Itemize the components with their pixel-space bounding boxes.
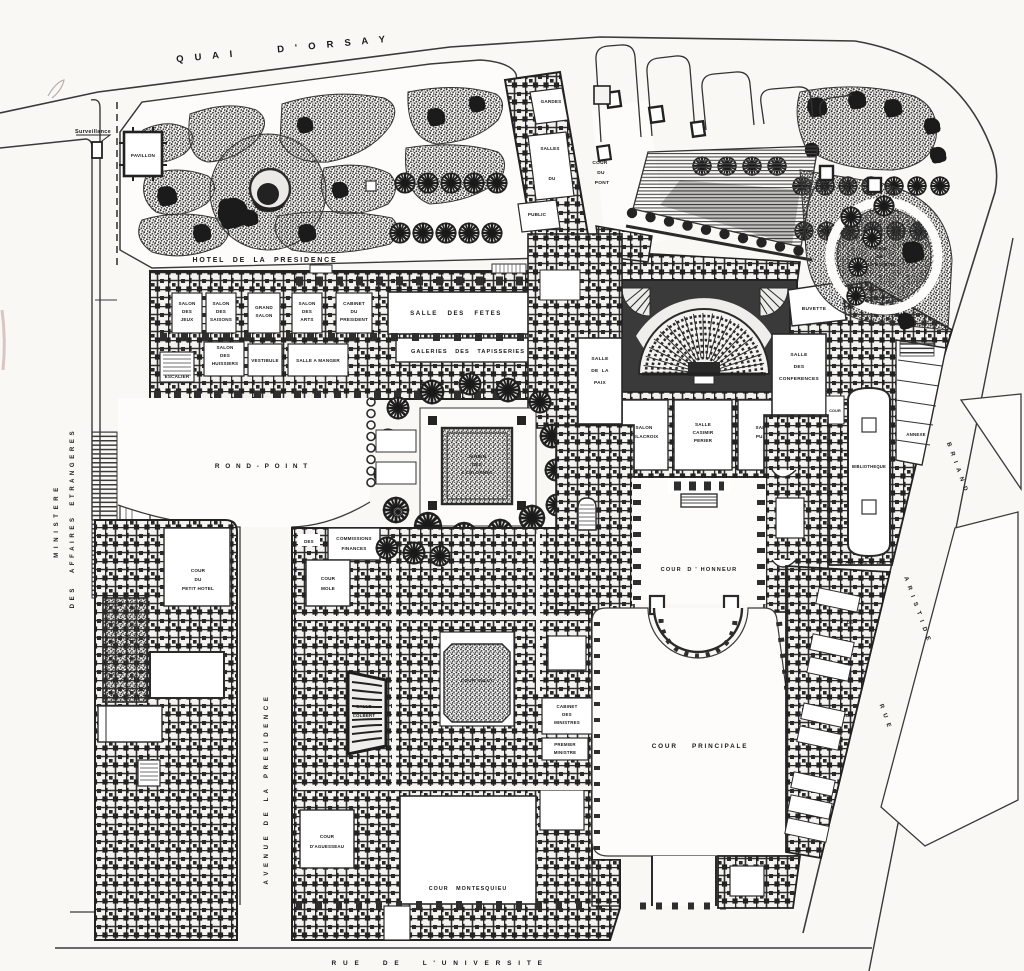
- svg-text:PUBLIC: PUBLIC: [528, 212, 547, 217]
- svg-text:COUR PRINCIPALE: COUR PRINCIPALE: [652, 743, 749, 750]
- svg-text:JEUX: JEUX: [181, 317, 195, 322]
- svg-text:COUR: COUR: [191, 568, 206, 573]
- svg-text:DE: DE: [877, 254, 883, 259]
- svg-text:PREMIER: PREMIER: [554, 742, 576, 747]
- svg-text:GALERIES DES TAPISSERIES: GALERIES DES TAPISSERIES: [411, 349, 525, 355]
- svg-text:GARDES: GARDES: [541, 99, 562, 104]
- svg-text:SALLE: SALLE: [695, 422, 711, 427]
- svg-text:PAIX: PAIX: [594, 380, 607, 386]
- svg-text:DU: DU: [194, 577, 202, 582]
- svg-text:FINANCES: FINANCES: [341, 546, 366, 551]
- svg-text:SALLE A MANGER: SALLE A MANGER: [296, 358, 340, 363]
- svg-text:4 COLONNES: 4 COLONNES: [461, 470, 493, 475]
- svg-text:M I N I S T E R E: M I N I S T E R E: [54, 486, 60, 558]
- svg-text:COUR D ' HONNEUR: COUR D ' HONNEUR: [661, 567, 738, 573]
- svg-text:PRESIDENT: PRESIDENT: [340, 317, 368, 322]
- svg-text:SALON: SALON: [635, 425, 653, 430]
- svg-text:DE LA: DE LA: [591, 368, 609, 374]
- svg-text:DES: DES: [562, 712, 572, 717]
- svg-text:JARDIN: JARDIN: [468, 454, 487, 459]
- svg-text:MINISTRE: MINISTRE: [554, 750, 577, 755]
- svg-text:R U E D E L ' U N I V: R U E D E L ' U N I V E R S I T E: [332, 960, 545, 967]
- svg-text:PERIER: PERIER: [694, 438, 713, 443]
- svg-text:DES: DES: [182, 309, 192, 314]
- svg-text:DE: DE: [847, 620, 854, 625]
- svg-text:PONT: PONT: [595, 180, 610, 186]
- svg-text:CABINET: CABINET: [557, 704, 578, 709]
- svg-text:CASIMIR: CASIMIR: [693, 430, 714, 435]
- svg-text:VESTIBULE: VESTIBULE: [251, 358, 279, 363]
- svg-text:MINISTRES: MINISTRES: [554, 720, 580, 725]
- svg-text:DU: DU: [350, 309, 358, 314]
- svg-text:HUISSIERS: HUISSIERS: [212, 361, 239, 366]
- svg-text:COUR: COUR: [320, 834, 335, 839]
- svg-text:A F F A I R E S: A F F A I R E S: [70, 517, 76, 573]
- svg-text:COUR: COUR: [321, 576, 336, 581]
- svg-text:SALLE: SALLE: [356, 704, 371, 709]
- svg-text:CABINET: CABINET: [343, 301, 365, 306]
- svg-text:PAVILLON: PAVILLON: [131, 153, 156, 158]
- svg-text:SALON: SALON: [255, 313, 273, 318]
- svg-text:BUVETTE: BUVETTE: [802, 306, 827, 312]
- svg-text:SALON: SALON: [298, 301, 316, 306]
- svg-text:COUR: COUR: [829, 409, 841, 413]
- svg-text:D E S: D E S: [70, 588, 76, 609]
- svg-text:SALLE: SALLE: [591, 356, 609, 362]
- svg-text:DES: DES: [216, 309, 226, 314]
- svg-text:COMMISSIONS: COMMISSIONS: [336, 536, 371, 541]
- svg-text:SALLE DES FETES: SALLE DES FETES: [410, 310, 502, 317]
- svg-text:CONFERENCES: CONFERENCES: [779, 376, 820, 382]
- svg-text:D'AGUESSEAU: D'AGUESSEAU: [310, 844, 344, 849]
- svg-text:BIBLIOTHEQUE: BIBLIOTHEQUE: [852, 464, 886, 469]
- svg-text:DES: DES: [794, 364, 805, 370]
- svg-text:HOTEL DE LA PRESIDENCE: HOTEL DE LA PRESIDENCE: [193, 257, 338, 264]
- svg-text:A N N E X E S: A N N E X E S: [845, 560, 886, 566]
- svg-text:COUR MONTESQUIEU: COUR MONTESQUIEU: [429, 886, 508, 892]
- svg-text:DU: DU: [548, 176, 556, 181]
- svg-text:GRAND: GRAND: [255, 305, 273, 310]
- svg-text:SALLE: SALLE: [790, 352, 808, 358]
- svg-text:COLBERT: COLBERT: [353, 713, 376, 718]
- svg-text:DES: DES: [472, 462, 482, 467]
- svg-text:E T R A N G E R E S: E T R A N G E R E S: [70, 430, 76, 505]
- svg-text:DU: DU: [597, 170, 605, 176]
- svg-text:COUR SULLY: COUR SULLY: [461, 678, 493, 683]
- svg-text:DES: DES: [304, 539, 314, 544]
- svg-text:SALON: SALON: [216, 345, 234, 350]
- svg-text:SALLES: SALLES: [540, 146, 559, 151]
- svg-text:SALON: SALON: [178, 301, 196, 306]
- svg-text:A V E N U E D E L A P R: A V E N U E D E L A P R E S I D E N C E: [264, 696, 270, 885]
- svg-text:SALON: SALON: [212, 301, 230, 306]
- svg-text:SAISONS: SAISONS: [210, 317, 232, 322]
- svg-text:DES: DES: [302, 309, 312, 314]
- svg-text:ANNEXE: ANNEXE: [906, 432, 926, 437]
- svg-text:R O N D - P O I N T: R O N D - P O I N T: [215, 463, 309, 470]
- svg-text:ESCALIER: ESCALIER: [165, 374, 190, 379]
- svg-text:DES: DES: [220, 353, 230, 358]
- svg-text:PETIT HOTEL: PETIT HOTEL: [182, 586, 214, 591]
- svg-text:Surveillance: Surveillance: [75, 129, 111, 135]
- svg-text:MOLE: MOLE: [321, 586, 335, 591]
- svg-text:ARTS: ARTS: [300, 317, 313, 322]
- svg-text:LA BUVETTE: LA BUVETTE: [868, 262, 896, 267]
